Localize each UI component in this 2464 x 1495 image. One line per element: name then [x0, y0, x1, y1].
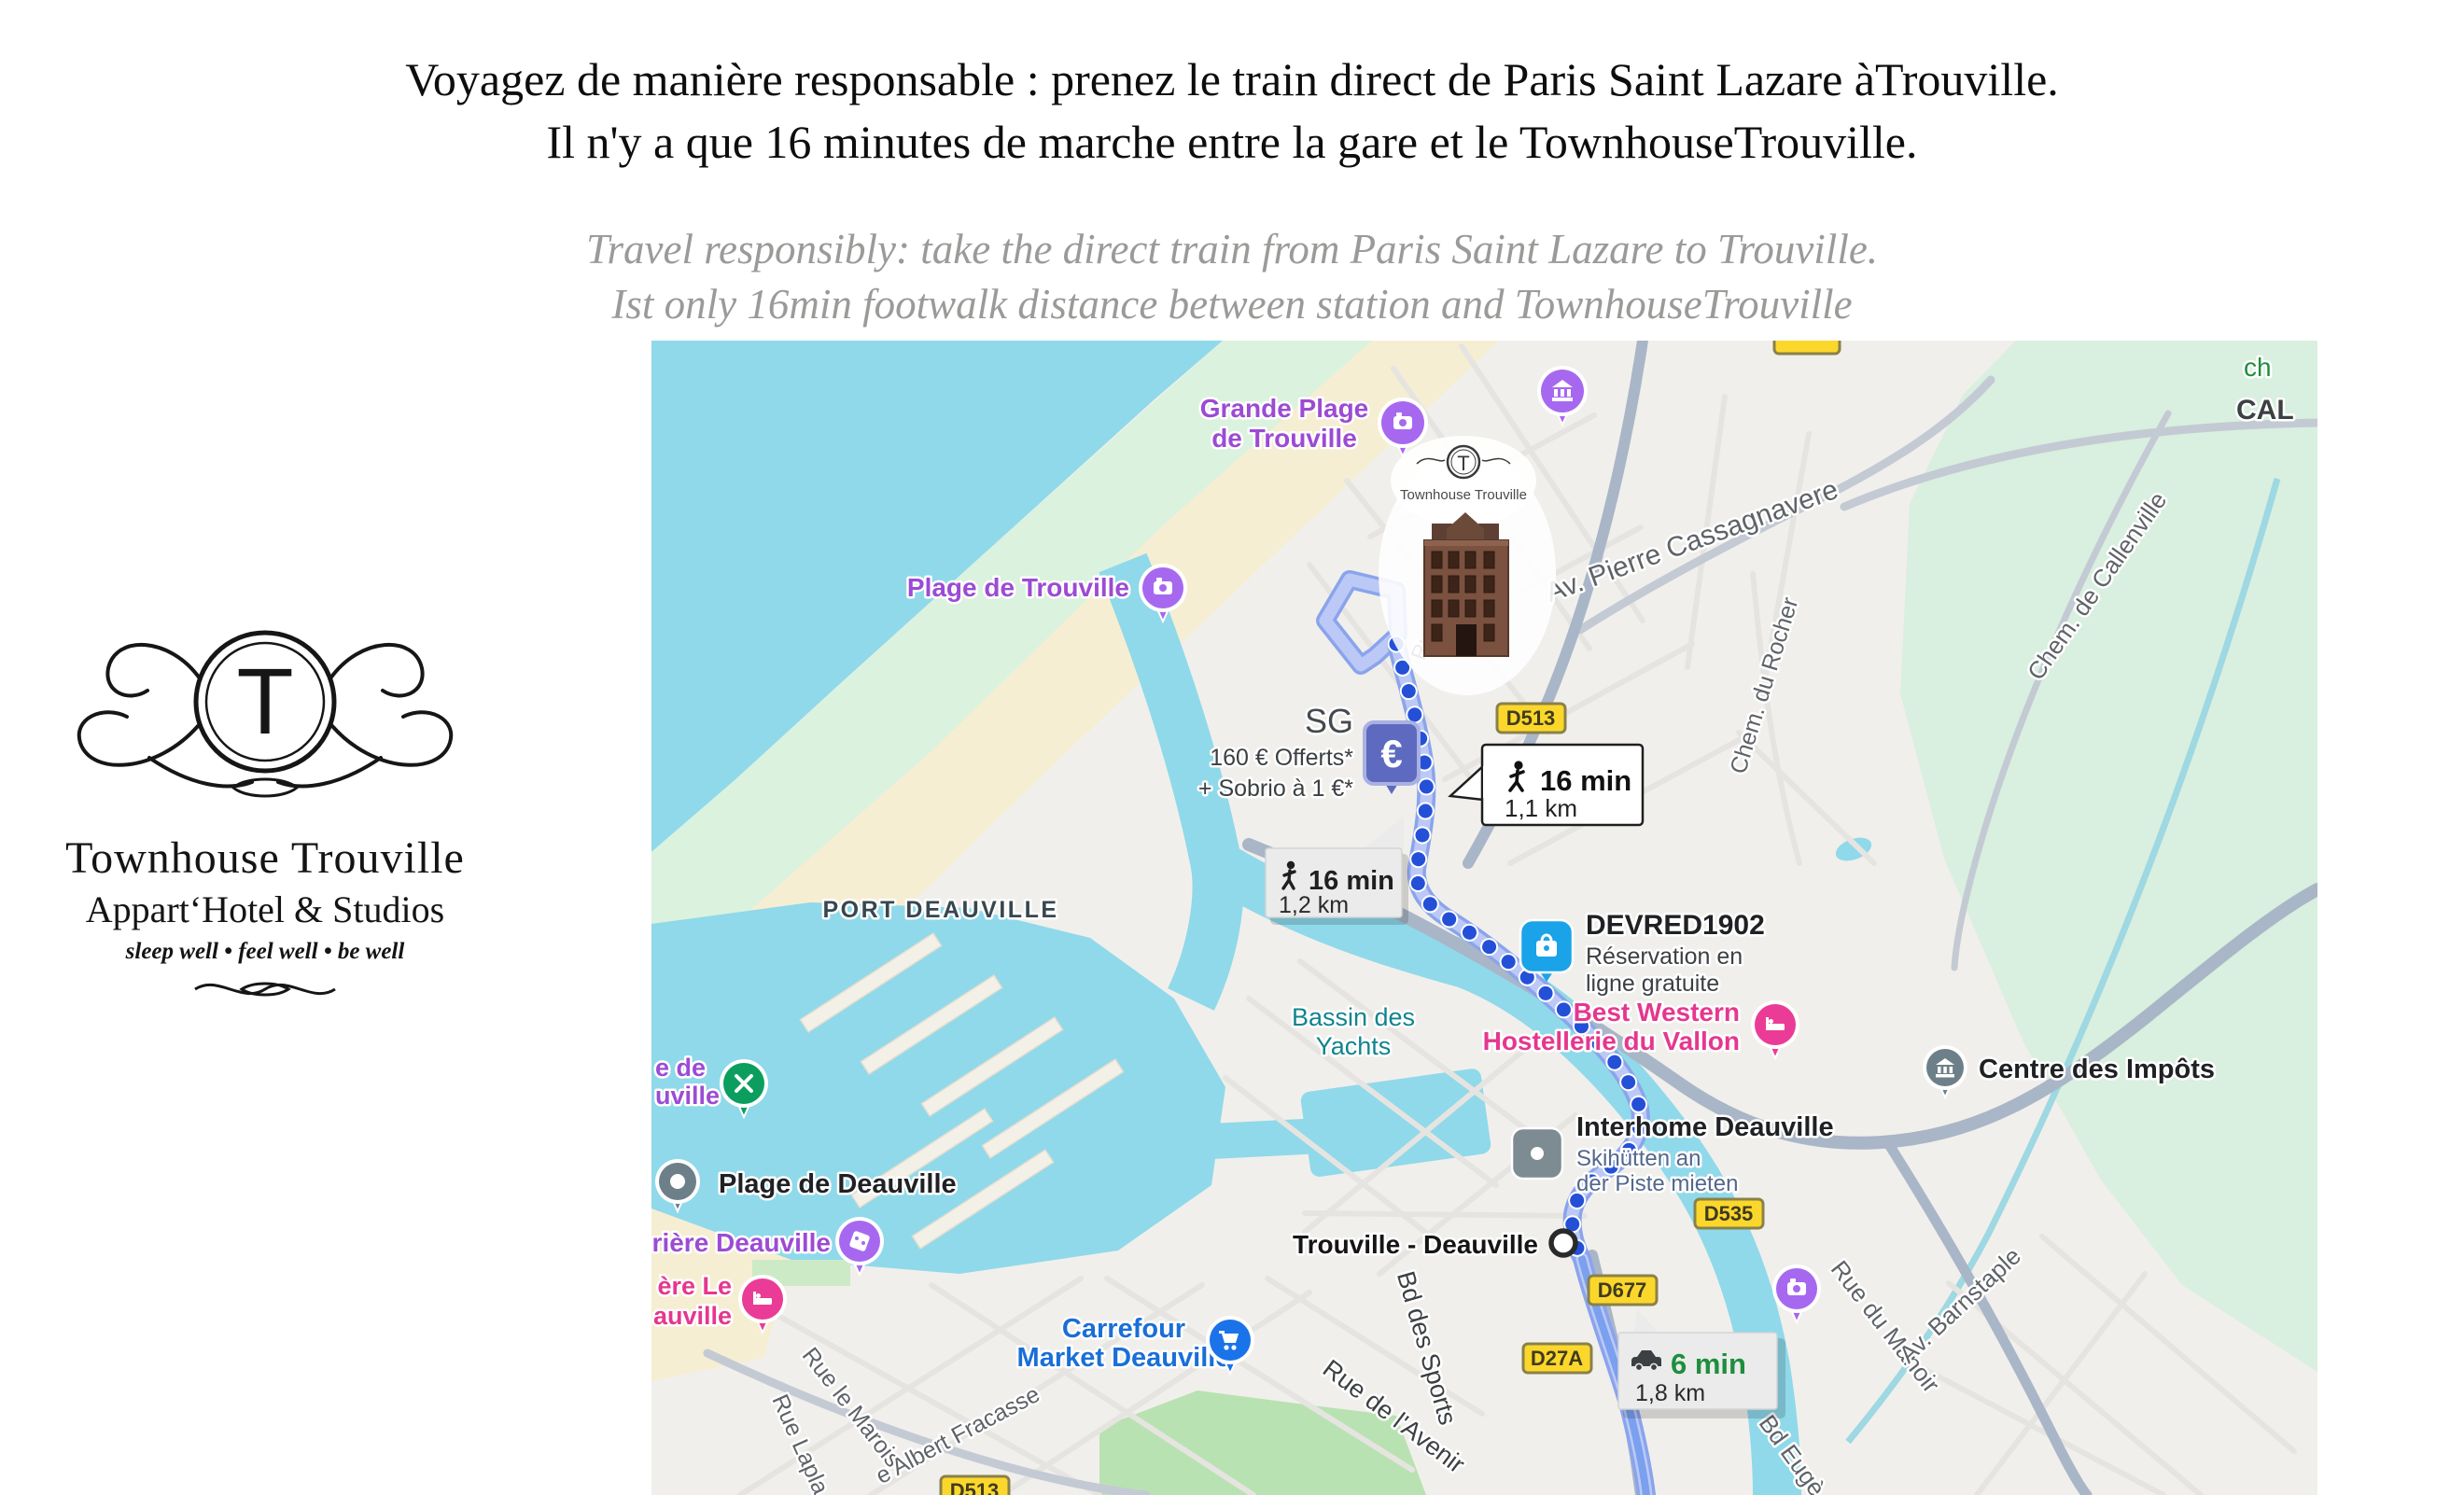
- label-devred-sub1: Réservation en: [1586, 943, 1743, 970]
- label-devred-sub2: ligne gratuite: [1586, 971, 1719, 997]
- header-english-line2: Ist only 16min footwalk distance between…: [0, 277, 2464, 332]
- label-green-trunc-2: uville: [655, 1082, 720, 1110]
- label-carrefour-1[interactable]: Carrefour: [1062, 1314, 1185, 1344]
- basin-link-channel: [1211, 1130, 1434, 1141]
- station-marker[interactable]: [1551, 1231, 1575, 1255]
- brand-tagline: sleep well • feel well • be well: [15, 939, 515, 965]
- ad-interhome[interactable]: [1512, 1128, 1562, 1179]
- brand-emblem-icon: T: [60, 608, 470, 831]
- road-badge-d677: D677: [1589, 1276, 1657, 1305]
- road-badge-d535: D535: [1695, 1199, 1763, 1228]
- label-station[interactable]: Trouville - Deauville: [1293, 1230, 1538, 1259]
- building-mini-label: Townhouse Trouville: [1400, 487, 1527, 503]
- building-illustration: [1424, 512, 1508, 656]
- ad-devred[interactable]: [1520, 920, 1573, 982]
- sg-ad-offer2: + Sobrio à 1 €*: [1198, 775, 1353, 802]
- euro-icon[interactable]: €: [1365, 722, 1419, 794]
- label-grande-plage-1[interactable]: Grande Plage: [1200, 394, 1369, 423]
- svg-text:D27A: D27A: [1531, 1347, 1583, 1370]
- area-label-bassin-1: Bassin des: [1292, 1003, 1415, 1031]
- brand-monogram: T: [236, 650, 293, 754]
- townhouse-building-overlay[interactable]: T Townhouse Trouville: [1379, 436, 1556, 695]
- label-carrefour-2[interactable]: Market Deauville: [1017, 1343, 1231, 1373]
- label-interhome-sub2: der Piste mieten: [1576, 1171, 1738, 1196]
- label-best-western-1[interactable]: Best Western: [1574, 998, 1740, 1027]
- label-hotel-trunc-2: auville: [653, 1302, 732, 1330]
- road-badge-d513: D513: [1497, 704, 1565, 733]
- header-english: Travel responsibly: take the direct trai…: [0, 222, 2464, 331]
- label-grande-plage-2[interactable]: de Trouville: [1211, 424, 1357, 453]
- label-ch-truncated: ch: [2244, 353, 2272, 382]
- svg-text:D513: D513: [950, 1479, 1000, 1495]
- label-hotel-trunc-1: ère Le: [657, 1272, 732, 1300]
- svg-text:D677: D677: [1598, 1278, 1647, 1302]
- header-french-line2: Il n'y a que 16 minutes de marche entre …: [0, 111, 2464, 174]
- sg-ad-title[interactable]: SG: [1305, 702, 1353, 740]
- drive-dist: 1,8 km: [1635, 1380, 1705, 1406]
- map-canvas[interactable]: Av. Pierre Cassagnavere Chem. du Rocher …: [651, 341, 2317, 1495]
- brand-flourish-icon: [186, 971, 344, 1008]
- label-cal-truncated: CAL: [2236, 395, 2294, 426]
- walk-primary-dist: 1,1 km: [1505, 794, 1577, 822]
- brand-logo: T Townhouse Trouville Appart‘Hotel & Stu…: [15, 608, 515, 1008]
- road-badge-d27a: D27A: [1523, 1344, 1591, 1373]
- road-badge-d513-bottom: D513: [941, 1476, 1009, 1495]
- road-badge-top: [1774, 341, 1840, 354]
- walk-secondary-dist: 1,2 km: [1279, 892, 1349, 918]
- sg-ad-offer1: 160 € Offerts*: [1210, 745, 1353, 771]
- label-green-trunc-1: e de: [655, 1054, 706, 1082]
- label-interhome[interactable]: Interhome Deauville: [1576, 1112, 1834, 1142]
- label-plage-deauville[interactable]: Plage de Deauville: [719, 1169, 957, 1199]
- ad-dot-icon: [1531, 1147, 1544, 1160]
- area-label-port-deauville: PORT DEAUVILLE: [822, 897, 1058, 923]
- label-casino-trunc: rière Deauville: [652, 1228, 831, 1257]
- svg-text:D513: D513: [1506, 706, 1556, 730]
- brand-name: Townhouse Trouville: [15, 832, 515, 884]
- svg-text:€: €: [1380, 732, 1402, 775]
- label-plage-trouville[interactable]: Plage de Trouville: [907, 573, 1129, 602]
- walk-primary-time: 16 min: [1540, 764, 1631, 797]
- svg-text:D535: D535: [1704, 1202, 1754, 1225]
- area-label-bassin-2: Yachts: [1316, 1032, 1392, 1060]
- dot-icon: [670, 1174, 685, 1189]
- header-french-line1: Voyagez de manière responsable : prenez …: [0, 49, 2464, 111]
- svg-text:T: T: [1457, 452, 1469, 475]
- label-centre-impots[interactable]: Centre des Impôts: [1979, 1055, 2215, 1084]
- label-devred[interactable]: DEVRED1902: [1586, 910, 1765, 941]
- brand-subtitle: Appart‘Hotel & Studios: [15, 887, 515, 931]
- label-interhome-sub1: Skihütten an: [1576, 1146, 1701, 1171]
- header-french: Voyagez de manière responsable : prenez …: [0, 49, 2464, 174]
- header-english-line1: Travel responsibly: take the direct trai…: [0, 222, 2464, 277]
- drive-time: 6 min: [1671, 1348, 1746, 1380]
- label-best-western-2[interactable]: Hostellerie du Vallon: [1483, 1027, 1740, 1055]
